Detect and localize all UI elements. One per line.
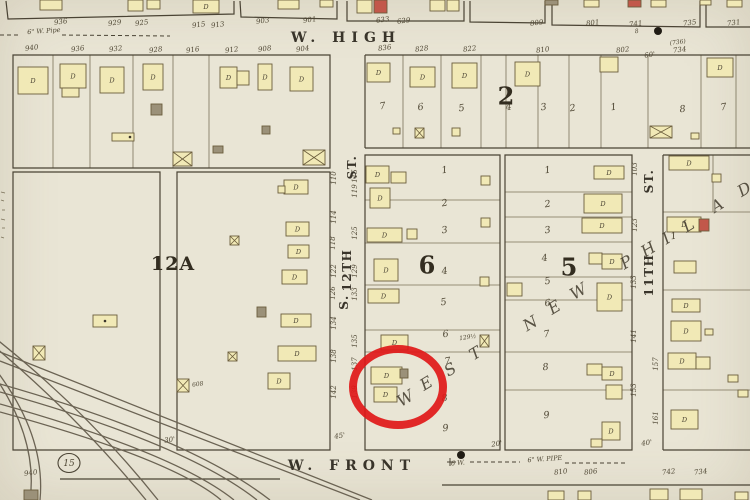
address-number: 138	[330, 349, 338, 363]
dwelling-mark: D	[599, 200, 606, 208]
lot-number: 7	[720, 102, 728, 114]
dwelling-mark: D	[69, 72, 76, 80]
dimension-label: 45'	[333, 431, 346, 441]
building-footprint	[62, 88, 79, 97]
address-number: 133	[630, 275, 638, 289]
dwelling-mark: D	[380, 292, 387, 300]
building-footprint	[584, 0, 599, 7]
lot-number: 1	[610, 102, 618, 114]
building-footprint	[400, 369, 408, 378]
dwelling-mark: D	[202, 3, 209, 11]
address-number: 126	[329, 286, 337, 300]
lot-number: 9	[442, 423, 450, 435]
address-number: 103	[631, 162, 639, 176]
dwelling-mark: D	[108, 76, 115, 84]
lot-number: 1	[441, 165, 449, 177]
lot-number: 3	[544, 225, 552, 237]
building-footprint	[705, 329, 713, 335]
building-footprint	[357, 0, 372, 13]
address-number: 141	[630, 329, 638, 342]
street-label-w-front: W. FRONT	[288, 458, 416, 474]
address-number: 822	[463, 44, 478, 54]
building-footprint	[587, 364, 602, 375]
lot-number: 3	[540, 102, 548, 114]
dwelling-mark: D	[292, 183, 299, 191]
building-footprint	[481, 218, 490, 227]
building-footprint	[40, 0, 62, 10]
address-number: 142	[330, 385, 338, 399]
address-number: 809	[530, 18, 545, 28]
dwelling-mark: D	[293, 350, 300, 358]
lot-number: 3	[441, 225, 449, 237]
address-number: 157	[652, 357, 660, 371]
address-number: 129½	[459, 333, 477, 342]
building-footprint	[452, 128, 460, 136]
lot-line	[1, 219, 5, 220]
block-label-12a: 12A	[151, 253, 195, 275]
address-number: 629	[397, 16, 412, 26]
street-label-11th-name: 11TH	[642, 254, 656, 297]
dimension-labels: 45'20'40'30'60'	[164, 50, 656, 449]
dimension-label: 20'	[490, 439, 503, 449]
building-footprint	[278, 186, 285, 193]
dwelling-mark: D	[375, 69, 382, 77]
address-number: 901	[303, 15, 317, 25]
block-label-5: 5	[561, 253, 578, 282]
dwelling-mark: D	[605, 169, 612, 177]
building-footprint	[589, 253, 602, 264]
block-outline	[13, 172, 160, 450]
hydrant-dot	[654, 27, 662, 35]
pipe-note: 6" W. PIPE	[527, 454, 563, 464]
address-number: 915	[192, 20, 207, 30]
address-number: 161	[652, 411, 660, 424]
building-footprint	[147, 0, 160, 9]
lot-number: 7	[543, 329, 551, 341]
dwelling-mark: D	[291, 273, 298, 281]
dwelling-mark: D	[608, 370, 615, 378]
lot-number: 8	[679, 104, 687, 116]
dwelling-mark: D	[598, 222, 605, 230]
building-footprint	[507, 283, 522, 296]
address-numbers: 9369299259159139039016336298098017418735…	[24, 15, 741, 478]
building-footprint	[374, 0, 387, 13]
building-footprint	[548, 491, 564, 500]
dwelling-mark: D	[381, 231, 388, 239]
addition-name-letter: A	[706, 194, 727, 217]
address-number: 806	[584, 467, 599, 477]
dwelling-mark: D	[681, 416, 688, 424]
address-number: 940	[25, 43, 40, 53]
dwelling-mark: D	[678, 357, 685, 365]
address-number: 913	[211, 20, 226, 30]
address-number: 916	[186, 45, 201, 55]
dwelling-mark: D	[685, 159, 692, 167]
address-number: 925	[135, 18, 150, 28]
dwelling-mark: D	[29, 77, 36, 85]
dwelling-mark: D	[149, 73, 156, 81]
lot-number: 8	[542, 362, 550, 374]
building-footprint	[578, 491, 591, 500]
building-footprint	[699, 219, 709, 231]
address-number: 118	[329, 236, 337, 250]
lot-number: 2	[543, 199, 552, 211]
address-number: 114	[330, 210, 338, 223]
dwelling-mark: D	[524, 70, 531, 78]
building-footprint	[628, 0, 641, 7]
building-footprint	[430, 0, 445, 11]
dwelling-mark: D	[682, 327, 689, 335]
building-footprint	[213, 146, 223, 153]
address-number: 940	[24, 468, 39, 478]
building-footprint	[262, 126, 270, 134]
block-outline	[177, 172, 330, 450]
lot-number: 2	[440, 198, 449, 210]
address-number: 828	[415, 44, 430, 54]
address-number: 936	[71, 44, 86, 54]
dwelling-mark: D	[294, 225, 301, 233]
building-footprint	[735, 492, 748, 500]
block-label-2: 2	[498, 82, 515, 111]
building-footprint	[680, 489, 702, 500]
water-pipe-lines	[0, 35, 625, 466]
address-number: 123	[631, 218, 639, 232]
address-number: 801	[586, 18, 600, 28]
building-footprint	[237, 71, 249, 85]
building-footprint	[651, 0, 666, 7]
street-label-s12th-s: S.	[337, 294, 351, 309]
building-footprint	[674, 261, 696, 273]
address-number: 929	[108, 18, 123, 28]
address-number: 912	[225, 45, 240, 55]
dimension-label: 40'	[640, 438, 653, 448]
address-number: 134	[330, 316, 338, 329]
building-footprint	[691, 133, 699, 139]
dwelling-mark: D	[419, 73, 426, 81]
pipe-note: 6 W.	[451, 459, 466, 468]
building-footprint	[407, 229, 417, 239]
building-footprint	[650, 489, 668, 500]
lot-line	[1, 237, 4, 238]
addition-name-letters: WESTNEWPHILAD	[393, 178, 750, 411]
lot-number: 6	[417, 102, 425, 114]
dwelling-mark: D	[382, 266, 389, 274]
dimension-label: 60'	[644, 50, 656, 59]
building-footprint	[151, 104, 162, 115]
building-footprint	[393, 128, 400, 134]
address-number: 119	[351, 184, 359, 198]
lot-line	[1, 192, 5, 193]
addition-name-letter: N	[518, 311, 542, 336]
dwelling-mark: D	[275, 377, 282, 385]
address-number: 608	[192, 380, 204, 389]
sanborn-map-canvas[interactable]: DDDDDDDDDDDDDDDDDDDDDDDDDDDDDDDDDDDDDDDD…	[0, 0, 750, 500]
lot-line	[1, 200, 4, 201]
block-outline	[552, 1, 700, 27]
address-number: 908	[258, 44, 273, 54]
building-footprint	[728, 375, 738, 382]
dwelling-mark: D	[461, 72, 468, 80]
dwelling-mark: D	[261, 73, 268, 81]
building-footprint	[278, 0, 299, 9]
building-footprint	[600, 57, 618, 72]
dwelling-mark: D	[606, 293, 613, 301]
block-label-6: 6	[419, 251, 436, 280]
building-footprint	[606, 385, 622, 399]
address-number: 135	[351, 334, 359, 348]
address-number: 932	[109, 44, 124, 54]
street-label-w-high: W. HIGH	[291, 30, 401, 46]
railroad-track	[0, 412, 221, 500]
ellipse-marker-15-label: 15	[63, 459, 75, 469]
dwelling-mark: D	[298, 75, 305, 83]
building-footprint	[700, 0, 711, 5]
street-label-s12th-name: 12TH	[340, 249, 354, 292]
dwelling-mark: D	[382, 391, 389, 399]
building-footprint	[447, 0, 459, 11]
building-footprint	[727, 0, 742, 7]
building-footprint	[128, 0, 143, 11]
lot-number: 5	[544, 276, 552, 288]
dwelling-mark: D	[376, 194, 383, 202]
building-footprint	[545, 0, 558, 5]
address-number: 8	[634, 28, 639, 35]
dimension-label: 30'	[164, 435, 176, 444]
address-number: 810	[536, 45, 551, 55]
address-number: 110	[330, 171, 338, 185]
lot-number: 1	[544, 165, 552, 177]
railroad-tracks	[0, 338, 372, 500]
dwelling-mark: D	[295, 248, 302, 256]
lot-number: 4	[440, 266, 449, 278]
lot-number: 5	[440, 297, 448, 309]
lot-number: 7	[379, 101, 387, 113]
building-footprint	[738, 390, 748, 397]
address-number: 742	[662, 467, 677, 477]
building-dot	[129, 136, 132, 139]
address-number: 125	[351, 226, 359, 240]
lot-number: 4	[540, 253, 549, 265]
building-footprint	[481, 176, 490, 185]
building-footprint	[24, 490, 38, 500]
dwelling-mark: D	[682, 302, 689, 310]
lot-number: 9	[543, 410, 551, 422]
addition-name-letter: D	[733, 178, 750, 201]
lot-number: 5	[458, 103, 466, 115]
pipe-note: 6" W. Pipe	[27, 26, 61, 36]
building-footprint	[480, 277, 489, 286]
dwelling-mark: D	[374, 171, 381, 179]
address-number: 802	[616, 45, 631, 55]
dwelling-mark: D	[716, 64, 723, 72]
dwelling-mark: D	[292, 317, 299, 325]
dwelling-mark: D	[607, 427, 614, 435]
building-dot	[104, 320, 107, 323]
addition-name-letter: E	[415, 372, 436, 395]
street-label-11th-st: ST.	[642, 169, 656, 194]
map-drawing: DDDDDDDDDDDDDDDDDDDDDDDDDDDDDDDDDDDDDDDD…	[0, 0, 750, 500]
dwelling-mark: D	[608, 258, 615, 266]
address-number: 122	[330, 264, 338, 278]
hydrant-dot	[457, 451, 465, 459]
address-number: 734	[694, 467, 708, 477]
building-footprint	[257, 307, 266, 317]
building-footprint	[696, 357, 710, 369]
street-label-s12th-st: ST.	[345, 155, 359, 180]
building-footprint	[320, 0, 333, 7]
building-footprint	[712, 174, 721, 182]
building-footprint	[591, 439, 602, 447]
lot-number: 6	[442, 329, 450, 341]
address-number: 633	[376, 15, 391, 25]
address-number: 734	[673, 45, 687, 55]
address-number: 903	[256, 16, 271, 26]
building-footprint	[391, 172, 406, 183]
address-number: 928	[149, 45, 164, 55]
dwelling-mark: D	[383, 372, 390, 380]
address-number: 810	[554, 467, 569, 477]
address-number: 153	[630, 383, 638, 397]
water-pipe-dashed-line	[62, 35, 170, 36]
dwelling-mark: D	[225, 74, 232, 82]
